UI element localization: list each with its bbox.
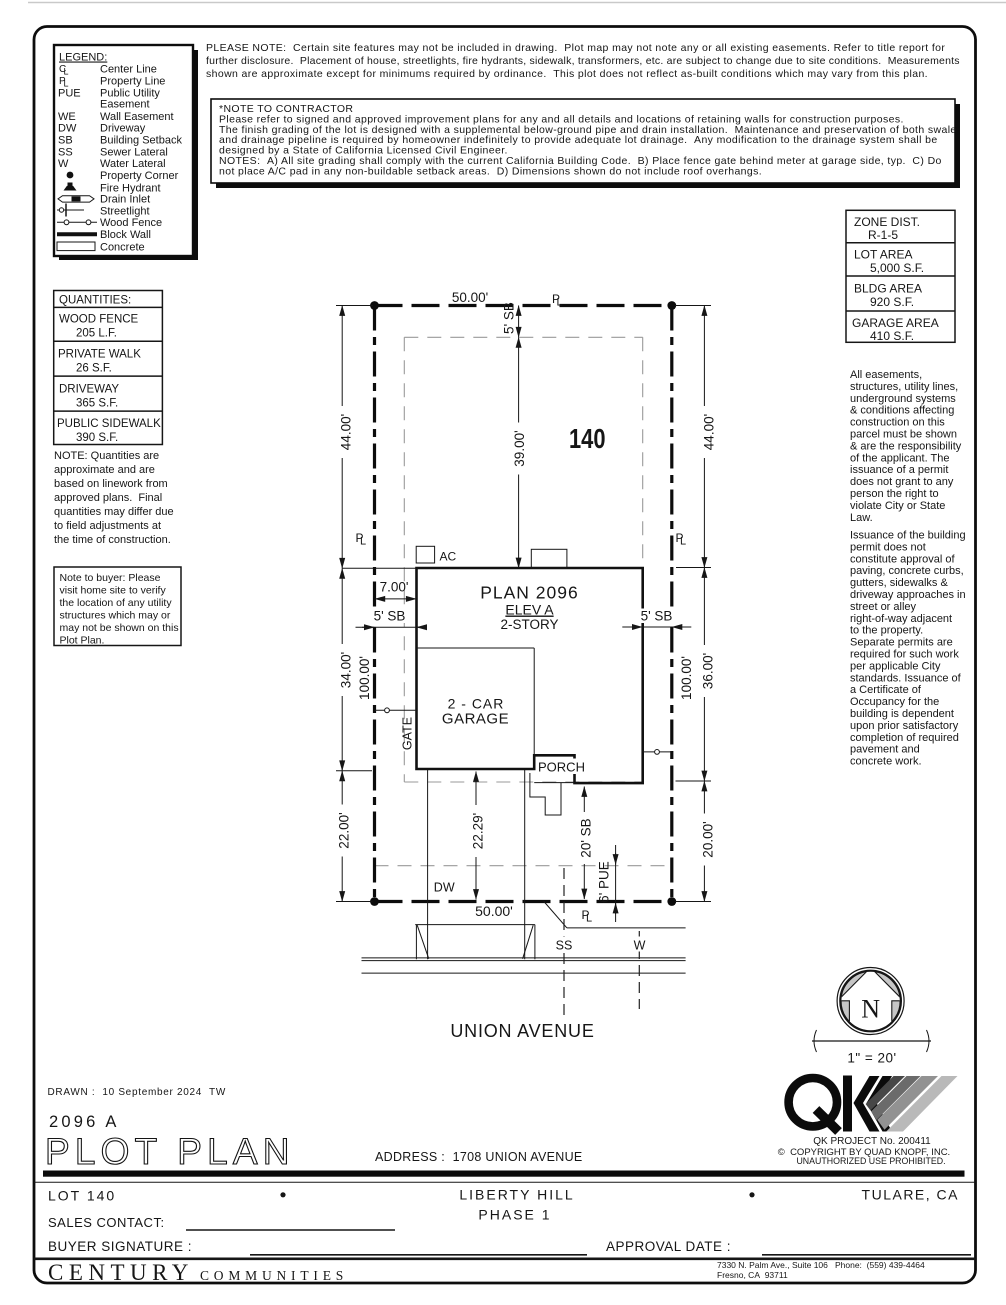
svg-text:PUE: PUE xyxy=(58,87,81,99)
svg-text:Building Setback: Building Setback xyxy=(100,135,182,147)
svg-text:1" = 20': 1" = 20' xyxy=(847,1051,896,1066)
svg-text:All easements,: All easements, xyxy=(850,369,922,381)
svg-text:ZONE DIST.: ZONE DIST. xyxy=(854,215,920,229)
svg-text:Streetlight: Streetlight xyxy=(100,205,150,217)
svg-text:parcel must be shown: parcel must be shown xyxy=(850,429,957,441)
svg-text:to the property.: to the property. xyxy=(850,625,923,637)
svg-text:does not grant to any: does not grant to any xyxy=(850,476,954,488)
svg-text:UNAUTHORIZED USE PROHIBITED.: UNAUTHORIZED USE PROHIBITED. xyxy=(796,1156,945,1166)
svg-text:the time of construction.: the time of construction. xyxy=(54,534,171,546)
svg-text:Center Line: Center Line xyxy=(100,64,157,76)
svg-text:Public Utility: Public Utility xyxy=(100,87,160,99)
svg-text:PLEASE NOTE: Certain site fea: PLEASE NOTE: Certain site features may n… xyxy=(206,42,945,54)
svg-text:GATE: GATE xyxy=(401,717,415,750)
svg-text:Fresno, CA 93711: Fresno, CA 93711 xyxy=(717,1270,788,1280)
svg-text:20' SB: 20' SB xyxy=(579,818,594,857)
svg-text:Property Line: Property Line xyxy=(100,76,165,88)
svg-text:LIBERTY HILL: LIBERTY HILL xyxy=(459,1187,574,1203)
svg-text:QK PROJECT No. 200411: QK PROJECT No. 200411 xyxy=(813,1136,931,1147)
svg-text:quantities may differ due: quantities may differ due xyxy=(54,506,174,518)
svg-text:DW: DW xyxy=(434,881,455,895)
svg-text:UNION AVENUE: UNION AVENUE xyxy=(450,1021,594,1041)
svg-text:NOTE: Quantities are: NOTE: Quantities are xyxy=(54,450,159,462)
svg-text:Easement: Easement xyxy=(100,99,150,111)
svg-text:per applicable City: per applicable City xyxy=(850,660,941,672)
svg-text:SS: SS xyxy=(58,146,73,158)
svg-text:20.00': 20.00' xyxy=(701,821,716,857)
svg-text:5' SB: 5' SB xyxy=(374,609,406,624)
svg-text:Separate permits are: Separate permits are xyxy=(850,637,953,649)
svg-text:required for such work: required for such work xyxy=(850,649,959,661)
svg-text:W: W xyxy=(634,939,646,953)
svg-text:PLAN 2096: PLAN 2096 xyxy=(480,583,579,603)
svg-text:LOT AREA: LOT AREA xyxy=(854,248,912,262)
svg-text:Concrete: Concrete xyxy=(100,242,145,254)
svg-text:34.00': 34.00' xyxy=(339,652,354,688)
svg-text:2-STORY: 2-STORY xyxy=(500,617,558,632)
svg-text:construction on this: construction on this xyxy=(850,417,945,429)
svg-text:50.00': 50.00' xyxy=(475,903,513,919)
svg-text:structures, utility lines,: structures, utility lines, xyxy=(850,381,958,393)
svg-text:Driveway: Driveway xyxy=(100,123,146,135)
svg-text:Sewer Lateral: Sewer Lateral xyxy=(100,146,168,158)
svg-text:approved plans. Final: approved plans. Final xyxy=(54,492,162,504)
svg-text:of the applicant. The: of the applicant. The xyxy=(850,452,949,464)
svg-text:R-1-5: R-1-5 xyxy=(868,228,898,242)
svg-text:based on linework from: based on linework from xyxy=(54,478,168,490)
svg-text:DW: DW xyxy=(58,123,77,135)
svg-text:COMMUNITIES: COMMUNITIES xyxy=(200,1268,348,1283)
svg-text:LOT 140: LOT 140 xyxy=(48,1188,116,1204)
svg-text:paving, concrete curbs,: paving, concrete curbs, xyxy=(850,565,964,577)
svg-text:visit home site to verify: visit home site to verify xyxy=(60,585,167,597)
svg-text:TULARE, CA: TULARE, CA xyxy=(862,1187,959,1203)
svg-text:pavement and: pavement and xyxy=(850,744,920,756)
svg-text:ELEV A: ELEV A xyxy=(505,602,554,618)
svg-text:L: L xyxy=(360,536,366,548)
svg-text:structures which may or: structures which may or xyxy=(60,610,171,622)
svg-text:AC: AC xyxy=(440,550,457,564)
svg-text:gutters, sidewalks &: gutters, sidewalks & xyxy=(850,577,948,589)
svg-text:365 S.F.: 365 S.F. xyxy=(76,398,118,410)
svg-text:QUANTITIES:: QUANTITIES: xyxy=(59,295,131,307)
svg-text:approximate and are: approximate and are xyxy=(54,464,155,476)
svg-text:issuance of a permit: issuance of a permit xyxy=(850,464,948,476)
svg-text:underground systems: underground systems xyxy=(850,393,956,405)
svg-text:5,000 S.F.: 5,000 S.F. xyxy=(870,261,924,275)
svg-text:7.00': 7.00' xyxy=(380,580,409,595)
svg-text:6' PUE: 6' PUE xyxy=(596,861,611,903)
svg-text:DRIVEWAY: DRIVEWAY xyxy=(59,384,119,396)
svg-text:Property Corner: Property Corner xyxy=(100,170,179,182)
svg-text:L: L xyxy=(557,297,563,309)
svg-text:building is dependent: building is dependent xyxy=(850,708,954,720)
svg-text:Note to buyer: Please: Note to buyer: Please xyxy=(60,572,161,584)
svg-text:violate City or State: violate City or State xyxy=(850,500,945,512)
svg-text:7330 N. Palm Ave., Suite 106: 7330 N. Palm Ave., Suite 106 Phone: (559… xyxy=(717,1260,925,1270)
svg-text:100.00': 100.00' xyxy=(357,656,372,700)
svg-text:shown are approximate except f: shown are approximate except for minimum… xyxy=(206,68,928,80)
svg-text:WE: WE xyxy=(58,111,76,123)
svg-text:22.29': 22.29' xyxy=(471,813,486,849)
svg-text:Water Lateral: Water Lateral xyxy=(100,158,166,170)
svg-text:& are the responsibility: & are the responsibility xyxy=(850,440,962,452)
svg-text:Drain Inlet: Drain Inlet xyxy=(100,194,150,206)
svg-text:Wood Fence: Wood Fence xyxy=(100,217,162,229)
svg-text:Occupancy for the: Occupancy for the xyxy=(850,696,939,708)
svg-text:2 - CAR: 2 - CAR xyxy=(448,696,505,712)
svg-text:WOOD FENCE: WOOD FENCE xyxy=(59,314,139,326)
svg-text:not place A/C pad in any non-b: not place A/C pad in any non-buildable s… xyxy=(219,165,762,177)
svg-text:N: N xyxy=(861,995,880,1024)
svg-text:Wall Easement: Wall Easement xyxy=(100,111,174,123)
svg-text:PHASE 1: PHASE 1 xyxy=(478,1207,551,1223)
svg-text:140: 140 xyxy=(569,423,606,454)
svg-text:standards. Issuance of: standards. Issuance of xyxy=(850,672,962,684)
svg-text:390 S.F.: 390 S.F. xyxy=(76,432,118,444)
svg-text:a Certificate of: a Certificate of xyxy=(850,684,922,696)
svg-text:26 S.F.: 26 S.F. xyxy=(76,363,112,375)
svg-text:GARAGE: GARAGE xyxy=(442,711,509,728)
svg-text:completion of required: completion of required xyxy=(850,732,959,744)
svg-text:constitute approval of: constitute approval of xyxy=(850,553,956,565)
svg-text:PLOT PLAN: PLOT PLAN xyxy=(45,1131,295,1172)
svg-text:W: W xyxy=(58,158,69,170)
svg-text:100.00': 100.00' xyxy=(679,656,694,700)
svg-text:may not be shown on this: may not be shown on this xyxy=(60,622,179,634)
svg-text:LEGEND:: LEGEND: xyxy=(59,52,107,64)
svg-text:to field adjustments at: to field adjustments at xyxy=(54,520,161,532)
svg-text:the location of any utility: the location of any utility xyxy=(60,597,173,609)
svg-text:& conditions affecting: & conditions affecting xyxy=(850,405,954,417)
svg-text:right-of-way adjacent: right-of-way adjacent xyxy=(850,613,952,625)
svg-text:SALES CONTACT:: SALES CONTACT: xyxy=(48,1215,165,1230)
svg-text:SS: SS xyxy=(556,939,573,953)
svg-text:L: L xyxy=(586,913,592,925)
svg-text:ADDRESS : 1708 UNION AVENUE: ADDRESS : 1708 UNION AVENUE xyxy=(375,1150,583,1164)
svg-text:DRAWN : 10 September 2024 TW: DRAWN : 10 September 2024 TW xyxy=(48,1087,226,1098)
svg-text:CENTURY: CENTURY xyxy=(48,1260,194,1285)
svg-text:upon prior satisfactory: upon prior satisfactory xyxy=(850,720,959,732)
svg-text:GARAGE AREA: GARAGE AREA xyxy=(852,316,939,330)
svg-text:Law.: Law. xyxy=(850,512,873,524)
svg-text:410 S.F.: 410 S.F. xyxy=(870,329,914,343)
svg-text:920 S.F.: 920 S.F. xyxy=(870,295,914,309)
svg-text:APPROVAL DATE :: APPROVAL DATE : xyxy=(606,1239,731,1254)
svg-text:Block Wall: Block Wall xyxy=(100,229,151,241)
svg-text:44.00': 44.00' xyxy=(339,414,354,450)
svg-text:5' SB: 5' SB xyxy=(641,609,673,624)
svg-text:PORCH: PORCH xyxy=(538,760,585,775)
svg-text:further disclosure. Placement: further disclosure. Placement of house, … xyxy=(206,55,960,67)
svg-text:driveway approaches in: driveway approaches in xyxy=(850,589,966,601)
svg-text:36.00': 36.00' xyxy=(701,653,716,689)
svg-text:person the right to: person the right to xyxy=(850,488,939,500)
svg-text:PRIVATE WALK: PRIVATE WALK xyxy=(58,349,141,361)
svg-text:Plot Plan.: Plot Plan. xyxy=(60,635,105,647)
svg-text:L: L xyxy=(680,536,686,548)
svg-text:5' SB: 5' SB xyxy=(502,302,517,334)
svg-text:street or alley: street or alley xyxy=(850,601,917,613)
svg-text:BUYER SIGNATURE :: BUYER SIGNATURE : xyxy=(48,1239,192,1254)
svg-text:Issuance of the building: Issuance of the building xyxy=(850,530,966,542)
svg-text:50.00': 50.00' xyxy=(452,290,488,305)
svg-text:BLDG AREA: BLDG AREA xyxy=(854,282,922,296)
svg-text:PUBLIC SIDEWALK: PUBLIC SIDEWALK xyxy=(57,418,161,430)
svg-text:44.00': 44.00' xyxy=(701,414,716,450)
svg-text:concrete work.: concrete work. xyxy=(850,756,922,768)
svg-text:SB: SB xyxy=(58,135,73,147)
svg-text:39.00': 39.00' xyxy=(512,430,527,466)
svg-text:L: L xyxy=(64,67,69,77)
svg-text:22.00': 22.00' xyxy=(337,812,352,848)
svg-text:permit does not: permit does not xyxy=(850,541,926,553)
svg-text:205 L.F.: 205 L.F. xyxy=(76,328,117,340)
svg-text:2096 A: 2096 A xyxy=(49,1113,120,1131)
